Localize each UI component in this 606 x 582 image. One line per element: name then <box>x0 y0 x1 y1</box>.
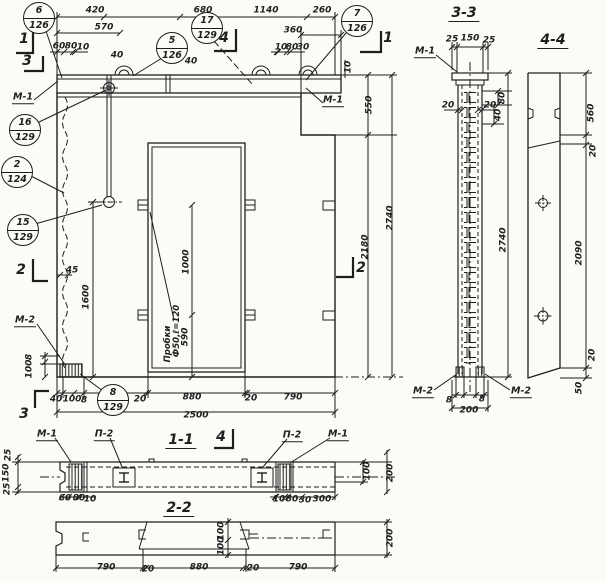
part-label: М-1 <box>327 429 349 441</box>
dimension-label: 30 <box>297 44 310 53</box>
callout-sheet-number: 124 <box>2 173 32 187</box>
dimension-label: 1600 <box>83 284 92 309</box>
dimension-label: 790 <box>289 564 308 573</box>
dimension-label: 790 <box>97 564 116 573</box>
dimension-label: 2740 <box>500 227 509 252</box>
dimension-label: 200 <box>387 529 396 548</box>
dimension-label: 25 <box>446 36 459 45</box>
dimension-label: 60 <box>59 495 72 504</box>
part-label: М-1 <box>12 92 34 104</box>
section-marker: 4 <box>216 430 226 444</box>
callout-position-number: 6 <box>24 4 54 19</box>
dimension-label: 790 <box>284 394 303 403</box>
dimension-label: 100 <box>26 360 35 379</box>
dimension-label: 2740 <box>387 205 396 230</box>
callout-position-number: 5 <box>157 34 187 49</box>
position-callout: 2124 <box>1 156 33 188</box>
section-title: 3-3 <box>448 6 479 22</box>
section-marker: 1 <box>383 31 393 45</box>
callout-position-number: 16 <box>10 116 40 131</box>
callout-position-number: 7 <box>342 7 372 22</box>
callout-sheet-number: 129 <box>10 131 40 145</box>
dimension-label: 60 <box>53 43 66 52</box>
dimension-label: 20 <box>484 102 497 111</box>
dimension-label: 420 <box>86 7 105 16</box>
callout-position-number: 2 <box>2 158 32 173</box>
callout-position-number: 17 <box>192 14 222 29</box>
dimension-label: 2500 <box>183 412 208 421</box>
dimension-label: 10 <box>84 496 97 505</box>
dimension-label: 30 <box>299 497 312 506</box>
dimension-label: 40 <box>111 52 124 61</box>
section-title: 1-1 <box>165 433 196 449</box>
dimension-label: 10 <box>77 44 90 53</box>
dimension-label: 20 <box>589 349 598 362</box>
section-title: 4-4 <box>537 33 568 49</box>
dimension-label: 20 <box>590 145 599 158</box>
dimension-label: 10 <box>273 496 286 505</box>
dimension-label: 2090 <box>576 240 585 265</box>
section-title: 2-2 <box>163 501 194 517</box>
section-marker: 2 <box>356 261 366 275</box>
dimension-label: 360 <box>284 27 303 36</box>
position-callout: 8129 <box>97 384 129 416</box>
part-label: М-2 <box>14 315 36 327</box>
dimension-label: 40 <box>495 109 504 122</box>
callout-sheet-number: 126 <box>157 49 187 63</box>
dimension-label: 80 <box>65 43 78 52</box>
dimension-label: 590 <box>182 328 191 347</box>
callout-sheet-number: 126 <box>342 22 372 36</box>
dimension-label: 560 <box>588 104 597 123</box>
dimension-label: 300 <box>313 496 332 505</box>
drawing-sheet: 4206801140260570360608010404010803010550… <box>0 0 606 582</box>
dimension-label: 40 <box>50 396 63 405</box>
dimension-label: 50 <box>576 382 585 395</box>
part-label: М-2 <box>510 386 532 398</box>
callout-sheet-number: 129 <box>98 401 128 415</box>
dimension-label: 150 <box>3 464 12 483</box>
section-marker: 2 <box>16 263 26 277</box>
dimension-label: 10 <box>345 61 354 74</box>
dimension-label: 20 <box>245 395 258 404</box>
dimension-label: 200 <box>387 464 396 483</box>
dimension-label: 8 <box>81 397 87 406</box>
dimension-label: 100 <box>63 396 82 405</box>
dimension-label: 200 <box>460 407 479 416</box>
position-callout: 6126 <box>23 2 55 34</box>
position-callout: 5126 <box>156 32 188 64</box>
part-label: П-2 <box>282 430 303 442</box>
section-marker: 3 <box>19 407 29 421</box>
part-label: П-2 <box>94 429 115 441</box>
dimension-label: 20 <box>134 396 147 405</box>
part-label: М-1 <box>322 95 344 107</box>
dimension-label: 1140 <box>253 7 278 16</box>
callout-sheet-number: 129 <box>8 231 38 245</box>
dimension-label: 25 <box>5 449 14 462</box>
dimension-label: 45 <box>66 267 79 276</box>
dimension-label: 20 <box>442 102 455 111</box>
section-marker: 1 <box>19 32 29 46</box>
dimension-label: 880 <box>190 564 209 573</box>
dimension-label: 550 <box>366 96 375 115</box>
callout-position-number: 15 <box>8 216 38 231</box>
dimension-label: 80 <box>499 92 508 105</box>
dimension-label: 100 <box>364 462 373 481</box>
position-callout: 7126 <box>341 5 373 37</box>
dimension-label: 260 <box>313 7 332 16</box>
dimension-label: 20 <box>142 566 155 575</box>
dimension-label: 80 <box>286 496 299 505</box>
labels-layer: 4206801140260570360608010404010803010550… <box>0 0 606 582</box>
dimension-label: 8 <box>446 397 452 406</box>
dimension-label: 1000 <box>183 249 192 274</box>
note-label: Ф50,ℓ=120 <box>173 305 182 357</box>
section-marker: 3 <box>22 54 32 68</box>
position-callout: 16129 <box>9 114 41 146</box>
dimension-label: 25 <box>4 483 13 496</box>
dimension-label: 100 <box>218 537 227 556</box>
callout-sheet-number: 126 <box>24 19 54 33</box>
dimension-label: 880 <box>183 394 202 403</box>
position-callout: 17129 <box>191 12 223 44</box>
dimension-label: 570 <box>95 24 114 33</box>
callout-position-number: 8 <box>98 386 128 401</box>
dimension-label: 20 <box>247 565 260 574</box>
dimension-label: 150 <box>461 35 480 44</box>
dimension-label: 2180 <box>362 234 371 259</box>
part-label: М-1 <box>414 46 436 58</box>
part-label: М-1 <box>36 429 58 441</box>
dimension-label: 8 <box>479 396 485 405</box>
callout-sheet-number: 129 <box>192 29 222 43</box>
dimension-label: 25 <box>483 37 496 46</box>
part-label: М-2 <box>412 386 434 398</box>
position-callout: 15129 <box>7 214 39 246</box>
